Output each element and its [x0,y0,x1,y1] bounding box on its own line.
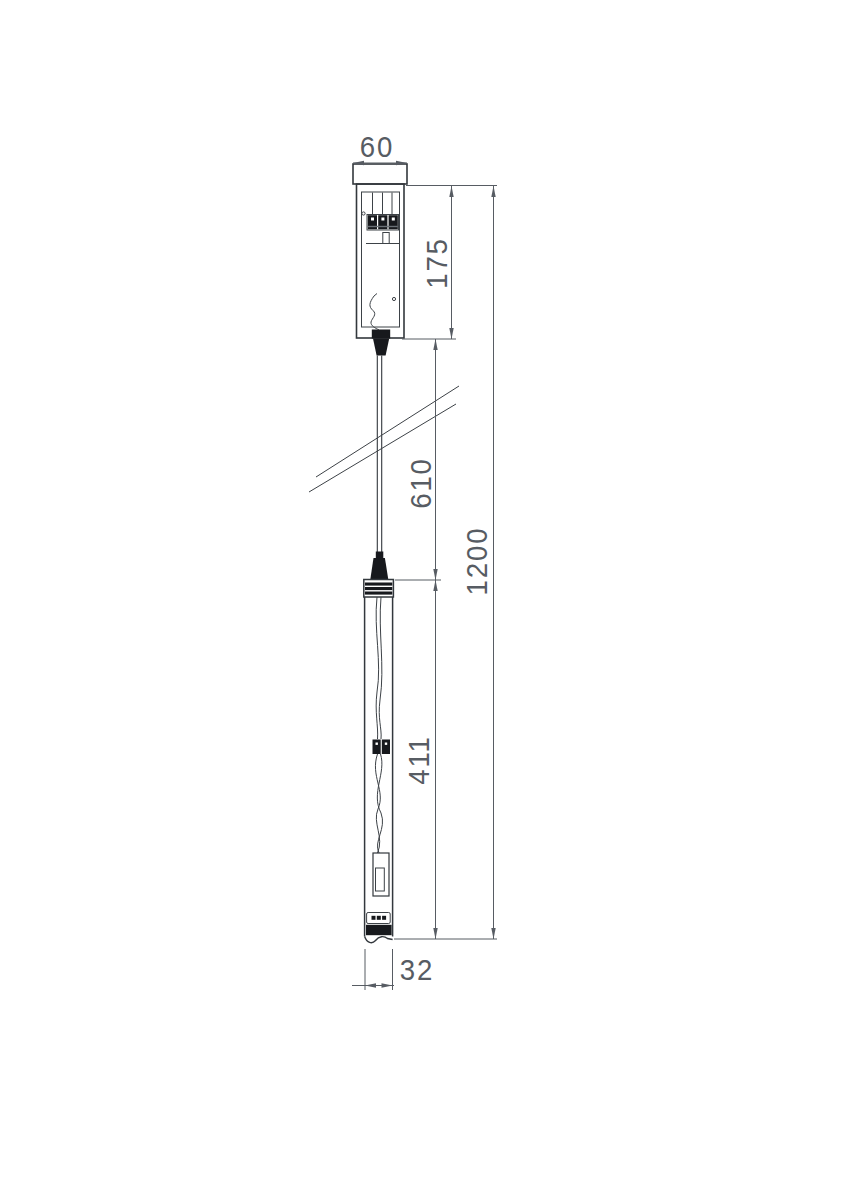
bottom-band [366,925,392,935]
bottom-lens-edge [365,937,393,943]
lamp-cap [364,580,394,598]
terminal-block [367,215,399,231]
mounting-plate [353,164,407,184]
fixture-drawing [0,0,849,1200]
lamp-tube-body [365,597,393,937]
dim-label-lamp-body-length: 411 [404,735,434,785]
terminal-wires [373,193,393,216]
dim-label-cable-section: 610 [406,457,436,509]
internal-wires-twisted [375,754,382,853]
wire-connector [373,740,391,755]
dim-label-lamp-diameter: 32 [400,955,434,985]
internal-wires-upper [376,597,382,739]
dim-610-411 [433,339,437,939]
drawing-canvas: 60 175 610 411 1200 32 [0,0,849,1200]
led-driver [373,853,389,896]
dim-label-overall-length: 1200 [462,527,492,596]
component-label [367,913,391,924]
suspension-cable [377,356,381,557]
canopy-wire [370,294,379,331]
dim-label-canopy-height: 175 [422,237,452,289]
cord-grip-top [372,330,390,356]
bracket-shelf [366,233,400,244]
canopy-box [357,184,405,338]
cable-grip-lamp-top [370,552,388,580]
dim-32 [352,949,394,990]
dim-label-canopy-width: 60 [360,132,394,162]
